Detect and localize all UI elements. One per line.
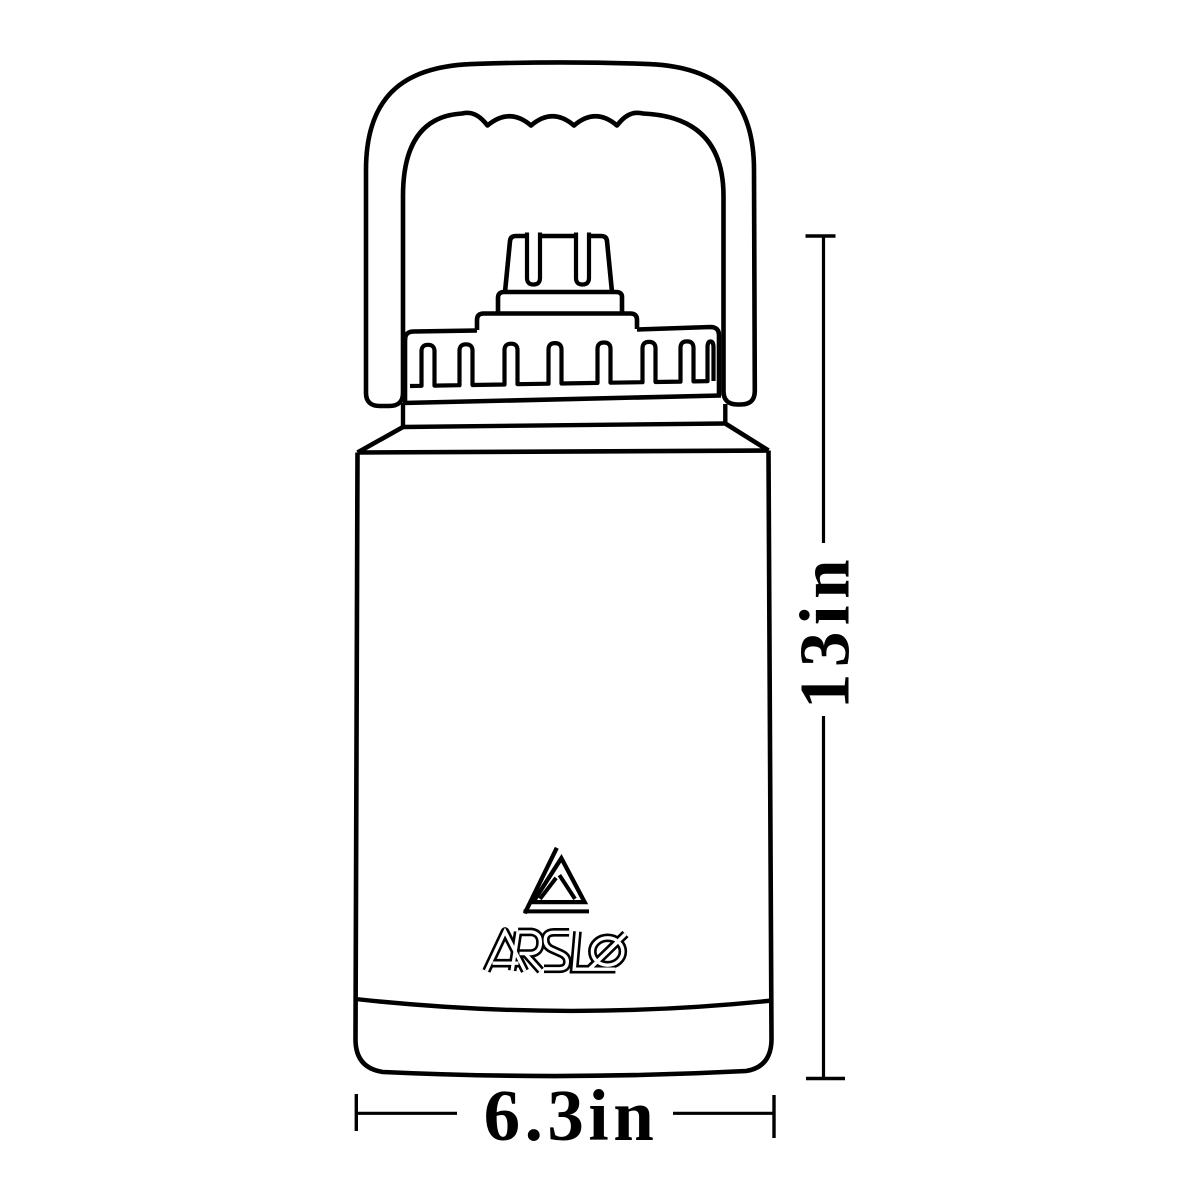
svg-text:6.3in: 6.3in bbox=[484, 1075, 659, 1156]
svg-text:13in: 13in bbox=[787, 553, 865, 709]
